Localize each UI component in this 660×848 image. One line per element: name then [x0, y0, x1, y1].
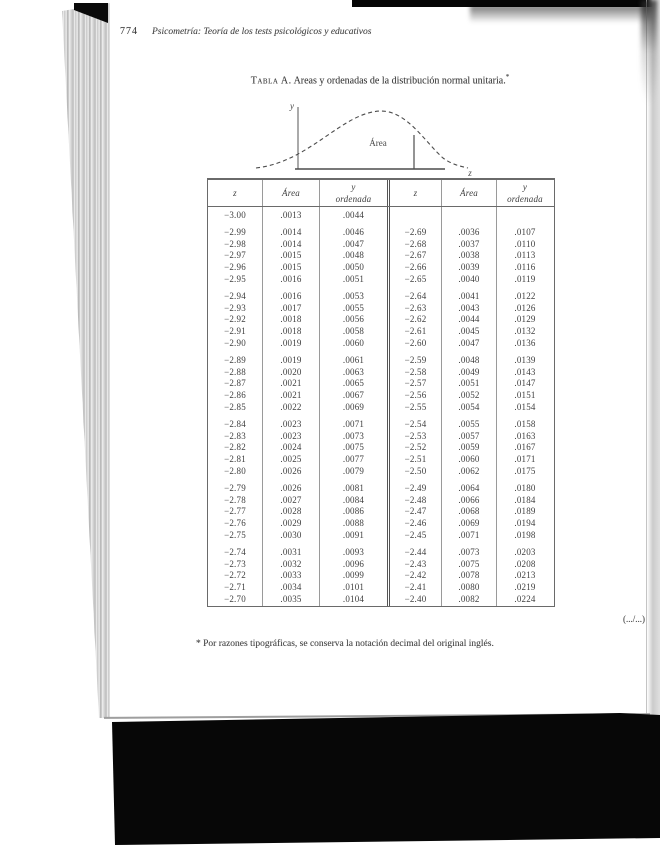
table-cell: −2.79	[208, 483, 263, 495]
table-cell: −2.40	[390, 594, 442, 606]
table-cell: .0018	[263, 314, 320, 326]
table-cell: .0052	[442, 390, 497, 402]
table-cell: .0151	[497, 390, 553, 402]
table-cell: .0079	[320, 466, 390, 478]
table-cell: .0067	[320, 390, 390, 402]
table-cell: −2.96	[208, 262, 263, 274]
table-cell: .0093	[320, 547, 390, 559]
table-cell: .0066	[442, 495, 497, 507]
table-row: −2.93.0017.0055−2.63.0043.0126	[208, 303, 554, 315]
table-cell: .0044	[320, 210, 390, 222]
table-row: −2.97.0015.0048−2.67.0038.0113	[208, 250, 554, 262]
table-cell: −2.57	[390, 378, 442, 390]
table-cell: .0081	[320, 483, 390, 495]
table-cell: −2.74	[208, 547, 263, 559]
table-cell: −2.58	[390, 367, 442, 379]
normal-curve-diagram: y Área z	[248, 98, 480, 186]
table-cell: .0054	[442, 402, 497, 414]
table-cell: .0224	[497, 594, 553, 606]
table-row: −2.88.0020.0063−2.58.0049.0143	[208, 367, 554, 379]
table-cell: .0180	[497, 483, 553, 495]
table-cell: −2.54	[390, 419, 442, 431]
table-cell: .0043	[442, 303, 497, 315]
table-cell: .0013	[263, 210, 320, 222]
table-row: −2.96.0015.0050−2.66.0039.0116	[208, 262, 554, 274]
table-cell: .0019	[263, 355, 320, 367]
table-row: −2.71.0034.0101−2.41.0080.0219	[208, 582, 554, 594]
table-cell: .0055	[442, 419, 497, 431]
table-cell: .0020	[263, 367, 320, 379]
table-cell: −2.60	[390, 338, 442, 350]
scanned-book-page: 774Psicometría: Teoría de los tests psic…	[0, 0, 660, 848]
table-cell: .0132	[497, 326, 553, 338]
table-cell: −2.67	[390, 250, 442, 262]
table-cell: −2.43	[390, 559, 442, 571]
binding-shadow	[641, 0, 657, 105]
table-cell: −2.99	[208, 227, 263, 239]
table-cell: .0026	[263, 483, 320, 495]
table-cell: .0107	[497, 227, 553, 239]
table-cell: .0101	[320, 582, 390, 594]
table-cell: .0064	[442, 483, 497, 495]
table-cell: .0044	[442, 314, 497, 326]
table-cell: .0096	[320, 559, 390, 571]
table-cell: .0091	[320, 530, 390, 542]
table-row: −2.92.0018.0056−2.62.0044.0129	[208, 314, 554, 326]
table-cell: −2.90	[208, 338, 263, 350]
table-cell: .0037	[442, 239, 497, 251]
table-cell: .0110	[497, 239, 553, 251]
table-cell: .0055	[320, 303, 390, 315]
table-cell: −2.59	[390, 355, 442, 367]
table-cell: −2.64	[390, 291, 442, 303]
table-cell: .0030	[263, 530, 320, 542]
table-cell: −2.69	[390, 227, 442, 239]
table-cell: .0060	[442, 454, 497, 466]
table-row: −2.84.0023.0071−2.54.0055.0158	[208, 419, 554, 431]
table-cell: .0048	[320, 250, 390, 262]
table-cell: .0104	[320, 594, 390, 606]
table-cell: −2.85	[208, 402, 263, 414]
scan-bottom-black-area	[100, 705, 660, 848]
table-row: −2.76.0029.0088−2.46.0069.0194	[208, 518, 554, 530]
area-label: Área	[369, 138, 387, 148]
table-row: −2.72.0033.0099−2.42.0078.0213	[208, 570, 554, 582]
table-cell: −2.72	[208, 570, 263, 582]
table-cell: .0068	[442, 506, 497, 518]
table-cell: −2.49	[390, 483, 442, 495]
table-cell: .0057	[442, 431, 497, 443]
page-right-edge-shadow	[646, 0, 660, 758]
table-cell: .0024	[263, 442, 320, 454]
table-cell: .0021	[263, 390, 320, 402]
header-cell-z2: z	[390, 180, 442, 206]
table-cell: −2.80	[208, 466, 263, 478]
table-cell: −2.95	[208, 274, 263, 286]
table-cell	[442, 210, 497, 222]
table-cell: .0071	[442, 530, 497, 542]
table-cell: .0184	[497, 495, 553, 507]
z-axis-label: z	[467, 168, 472, 178]
table-cell: .0082	[442, 594, 497, 606]
table-row: −2.86.0021.0067−2.56.0052.0151	[208, 390, 554, 402]
table-cell: .0198	[497, 530, 553, 542]
table-cell: −2.86	[208, 390, 263, 402]
table-cell: .0060	[320, 338, 390, 350]
table-row: −2.77.0028.0086−2.47.0068.0189	[208, 506, 554, 518]
normal-distribution-table: z Área y ordenada z Área y ordenada −3.0…	[207, 178, 555, 607]
table-cell: .0194	[497, 518, 553, 530]
table-cell: −2.84	[208, 419, 263, 431]
table-cell: .0065	[320, 378, 390, 390]
table-cell: −2.45	[390, 530, 442, 542]
table-cell: .0122	[497, 291, 553, 303]
table-cell: .0019	[263, 338, 320, 350]
table-cell: .0136	[497, 338, 553, 350]
table-cell: .0031	[263, 547, 320, 559]
table-cell: .0015	[263, 262, 320, 274]
table-cell: .0018	[263, 326, 320, 338]
table-cell: −2.73	[208, 559, 263, 571]
table-cell: .0051	[442, 378, 497, 390]
table-cell: .0041	[442, 291, 497, 303]
table-cell: .0113	[497, 250, 553, 262]
table-cell: .0208	[497, 559, 553, 571]
table-cell: .0099	[320, 570, 390, 582]
table-cell: −2.78	[208, 495, 263, 507]
table-row: −2.89.0019.0061−2.59.0048.0139	[208, 355, 554, 367]
table-cell: .0038	[442, 250, 497, 262]
table-cell: −2.68	[390, 239, 442, 251]
table-cell: .0143	[497, 367, 553, 379]
table-row: −2.91.0018.0058−2.61.0045.0132	[208, 326, 554, 338]
table-row: −2.83.0023.0073−2.53.0057.0163	[208, 431, 554, 443]
table-cell: .0063	[320, 367, 390, 379]
table-cell: .0086	[320, 506, 390, 518]
table-cell: −2.42	[390, 570, 442, 582]
table-row: −2.74.0031.0093−2.44.0073.0203	[208, 547, 554, 559]
table-cell: −2.88	[208, 367, 263, 379]
table-cell: −2.52	[390, 442, 442, 454]
table-cell: .0213	[497, 570, 553, 582]
table-title: Tabla A. Areas y ordenadas de la distrib…	[190, 73, 570, 86]
page-number: 774	[120, 26, 138, 37]
table-cell: .0175	[497, 466, 553, 478]
table-cell: .0015	[263, 250, 320, 262]
running-head: 774Psicometría: Teoría de los tests psic…	[120, 26, 371, 37]
footnote-marker: *	[506, 73, 510, 81]
table-cell: −2.62	[390, 314, 442, 326]
table-cell: .0080	[442, 582, 497, 594]
table-cell: −2.77	[208, 506, 263, 518]
table-cell	[497, 210, 553, 222]
table-cell: .0116	[497, 262, 553, 274]
table-cell: .0062	[442, 466, 497, 478]
table-cell: .0045	[442, 326, 497, 338]
table-cell: .0017	[263, 303, 320, 315]
table-cell: .0075	[442, 559, 497, 571]
table-cell: .0069	[320, 402, 390, 414]
table-cell: −2.98	[208, 239, 263, 251]
table-row: −2.79.0026.0081−2.49.0064.0180	[208, 483, 554, 495]
table-cell: .0147	[497, 378, 553, 390]
table-row: −2.78.0027.0084−2.48.0066.0184	[208, 495, 554, 507]
table-cell: .0027	[263, 495, 320, 507]
table-cell: .0032	[263, 559, 320, 571]
table-cell: .0219	[497, 582, 553, 594]
table-cell: .0129	[497, 314, 553, 326]
table-cell: .0084	[320, 495, 390, 507]
table-cell: −2.65	[390, 274, 442, 286]
table-row: −2.99.0014.0046−2.69.0036.0107	[208, 227, 554, 239]
table-cell: .0014	[263, 239, 320, 251]
table-cell: .0077	[320, 454, 390, 466]
table-row: −2.73.0032.0096−2.43.0075.0208	[208, 559, 554, 571]
table-cell: −2.63	[390, 303, 442, 315]
table-cell: .0088	[320, 518, 390, 530]
table-cell: .0023	[263, 431, 320, 443]
table-cell: .0059	[442, 442, 497, 454]
table-cell: .0078	[442, 570, 497, 582]
table-cell: .0016	[263, 274, 320, 286]
table-title-label: Tabla A.	[251, 75, 292, 86]
table-cell: .0167	[497, 442, 553, 454]
table-cell: .0171	[497, 454, 553, 466]
header-cell-ordinate: y ordenada	[320, 180, 390, 206]
table-cell: −2.94	[208, 291, 263, 303]
table-cell: −2.47	[390, 506, 442, 518]
table-cell: .0026	[263, 466, 320, 478]
table-cell: −2.56	[390, 390, 442, 402]
table-cell: −2.61	[390, 326, 442, 338]
table-cell: .0154	[497, 402, 553, 414]
table-cell: .0035	[263, 594, 320, 606]
footnote: * Por razones tipográficas, se conserva …	[196, 639, 494, 649]
table-row: −2.98.0014.0047−2.68.0037.0110	[208, 239, 554, 251]
header-cell-ordinate2: y ordenada	[497, 180, 553, 206]
table-title-text: Areas y ordenadas de la distribución nor…	[294, 75, 506, 86]
table-cell: −2.48	[390, 495, 442, 507]
table-cell: .0126	[497, 303, 553, 315]
table-cell: .0119	[497, 274, 553, 286]
header-cell-area2: Área	[442, 180, 497, 206]
y-axis-label: y	[289, 101, 294, 111]
table-cell: .0203	[497, 547, 553, 559]
table-cell: .0053	[320, 291, 390, 303]
table-cell: .0069	[442, 518, 497, 530]
table-cell: −2.51	[390, 454, 442, 466]
table-cell: −2.93	[208, 303, 263, 315]
table-cell: .0158	[497, 419, 553, 431]
table-cell: .0075	[320, 442, 390, 454]
table-cell: −2.55	[390, 402, 442, 414]
table-cell: .0163	[497, 431, 553, 443]
table-cell: .0047	[442, 338, 497, 350]
table-cell: −2.76	[208, 518, 263, 530]
table-cell: −2.82	[208, 442, 263, 454]
table-cell: .0061	[320, 355, 390, 367]
table-row: −2.87.0021.0065−2.57.0051.0147	[208, 378, 554, 390]
continuation-mark: (.../...)	[555, 614, 645, 624]
table-cell: .0040	[442, 274, 497, 286]
table-cell: −2.87	[208, 378, 263, 390]
table-row: −2.94.0016.0053−2.64.0041.0122	[208, 291, 554, 303]
table-cell: −2.53	[390, 431, 442, 443]
table-cell: .0056	[320, 314, 390, 326]
table-cell: .0047	[320, 239, 390, 251]
table-cell: .0016	[263, 291, 320, 303]
table-cell: .0050	[320, 262, 390, 274]
table-cell: .0139	[497, 355, 553, 367]
table-cell: .0029	[263, 518, 320, 530]
table-row: −2.81.0025.0077−2.51.0060.0171	[208, 454, 554, 466]
table-cell: .0073	[442, 547, 497, 559]
scan-top-shadow	[470, 5, 660, 23]
table-cell: .0189	[497, 506, 553, 518]
table-row: −2.75.0030.0091−2.45.0071.0198	[208, 530, 554, 542]
table-cell: −2.83	[208, 431, 263, 443]
table-cell: .0048	[442, 355, 497, 367]
table-row: −2.90.0019.0060−2.60.0047.0136	[208, 338, 554, 350]
table-cell: .0036	[442, 227, 497, 239]
table-cell: .0033	[263, 570, 320, 582]
table-row: −2.82.0024.0075−2.52.0059.0167	[208, 442, 554, 454]
table-cell: −2.92	[208, 314, 263, 326]
table-cell: .0073	[320, 431, 390, 443]
table-cell: .0071	[320, 419, 390, 431]
table-cell: −2.89	[208, 355, 263, 367]
table-cell: .0058	[320, 326, 390, 338]
table-cell: .0022	[263, 402, 320, 414]
table-row: −2.85.0022.0069−2.55.0054.0154	[208, 402, 554, 414]
table-cell: −2.41	[390, 582, 442, 594]
table-cell: .0039	[442, 262, 497, 274]
table-row: −2.70.0035.0104−2.40.0082.0224	[208, 594, 554, 606]
table-cell: .0014	[263, 227, 320, 239]
table-cell: −2.81	[208, 454, 263, 466]
table-cell: −2.70	[208, 594, 263, 606]
table-cell	[390, 210, 442, 222]
normal-curve	[256, 111, 468, 168]
table-cell: −2.75	[208, 530, 263, 542]
table-cell: .0049	[442, 367, 497, 379]
table-row: −3.00.0013.0044	[208, 210, 554, 222]
table-cell: .0051	[320, 274, 390, 286]
table-cell: .0034	[263, 582, 320, 594]
header-cell-area: Área	[263, 180, 320, 206]
table-cell: −2.46	[390, 518, 442, 530]
table-row: −2.95.0016.0051−2.65.0040.0119	[208, 274, 554, 286]
table-cell: −3.00	[208, 210, 263, 222]
table-header-row: z Área y ordenada z Área y ordenada	[208, 180, 554, 207]
table-cell: .0046	[320, 227, 390, 239]
table-row: −2.80.0026.0079−2.50.0062.0175	[208, 466, 554, 478]
book-page-stack-edge	[60, 3, 110, 718]
table-cell: −2.50	[390, 466, 442, 478]
table-cell: −2.91	[208, 326, 263, 338]
table-cell: −2.44	[390, 547, 442, 559]
table-cell: .0023	[263, 419, 320, 431]
table-cell: −2.66	[390, 262, 442, 274]
running-head-title: Psicometría: Teoría de los tests psicoló…	[152, 27, 371, 37]
table-cell: .0021	[263, 378, 320, 390]
table-cell: −2.97	[208, 250, 263, 262]
header-cell-z: z	[208, 180, 263, 206]
table-cell: −2.71	[208, 582, 263, 594]
table-cell: .0028	[263, 506, 320, 518]
table-body: −3.00.0013.0044−2.99.0014.0046−2.69.0036…	[208, 207, 554, 606]
table-cell: .0025	[263, 454, 320, 466]
